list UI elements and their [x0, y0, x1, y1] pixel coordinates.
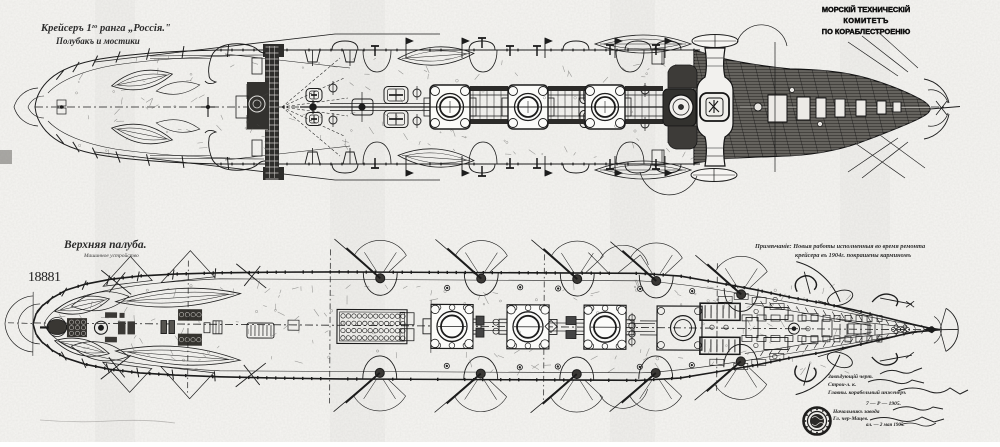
svg-text:Строи-л. к.: Строи-л. к.: [828, 382, 856, 388]
svg-text:Примѣчаніе: Новыя работы испол: Примѣчаніе: Новыя работы исполненныя во …: [754, 243, 925, 250]
svg-text:Начальникъ завода: Начальникъ завода: [832, 408, 880, 415]
svg-text:Гл. чер-Мацев.: Гл. чер-Мацев.: [832, 416, 868, 422]
svg-text:Крейсеръ 1го ранга „Россія.": Крейсеръ 1го ранга „Россія.": [40, 23, 171, 34]
svg-text:Завѣдующій черт.: Завѣдующій черт.: [827, 373, 873, 380]
svg-text:Полубакъ и мостики: Полубакъ и мостики: [55, 36, 140, 46]
svg-text:крейсера въ 1904г. покрашены к: крейсера въ 1904г. покрашены карминомъ: [795, 252, 912, 259]
svg-text:МОРСКІЙ ТЕХНИЧЕСКІЙ: МОРСКІЙ ТЕХНИЧЕСКІЙ: [822, 5, 910, 14]
svg-text:ПО КОРАБЛЕСТРОЕНІЮ: ПО КОРАБЛЕСТРОЕНІЮ: [822, 27, 911, 36]
svg-text:Верхняя палуба.: Верхняя палуба.: [63, 239, 147, 251]
svg-text:ал. — 2 мая 1905.: ал. — 2 мая 1905.: [866, 423, 905, 428]
svg-text:Машинное устройство: Машинное устройство: [83, 252, 139, 259]
svg-text:Главны. корабельный инженеръ: Главны. корабельный инженеръ: [827, 389, 906, 396]
svg-text:18881: 18881: [28, 270, 61, 285]
svg-text:7 — Р — 1905.: 7 — Р — 1905.: [866, 401, 901, 407]
svg-text:КОМИТЕТЪ: КОМИТЕТЪ: [843, 16, 888, 25]
